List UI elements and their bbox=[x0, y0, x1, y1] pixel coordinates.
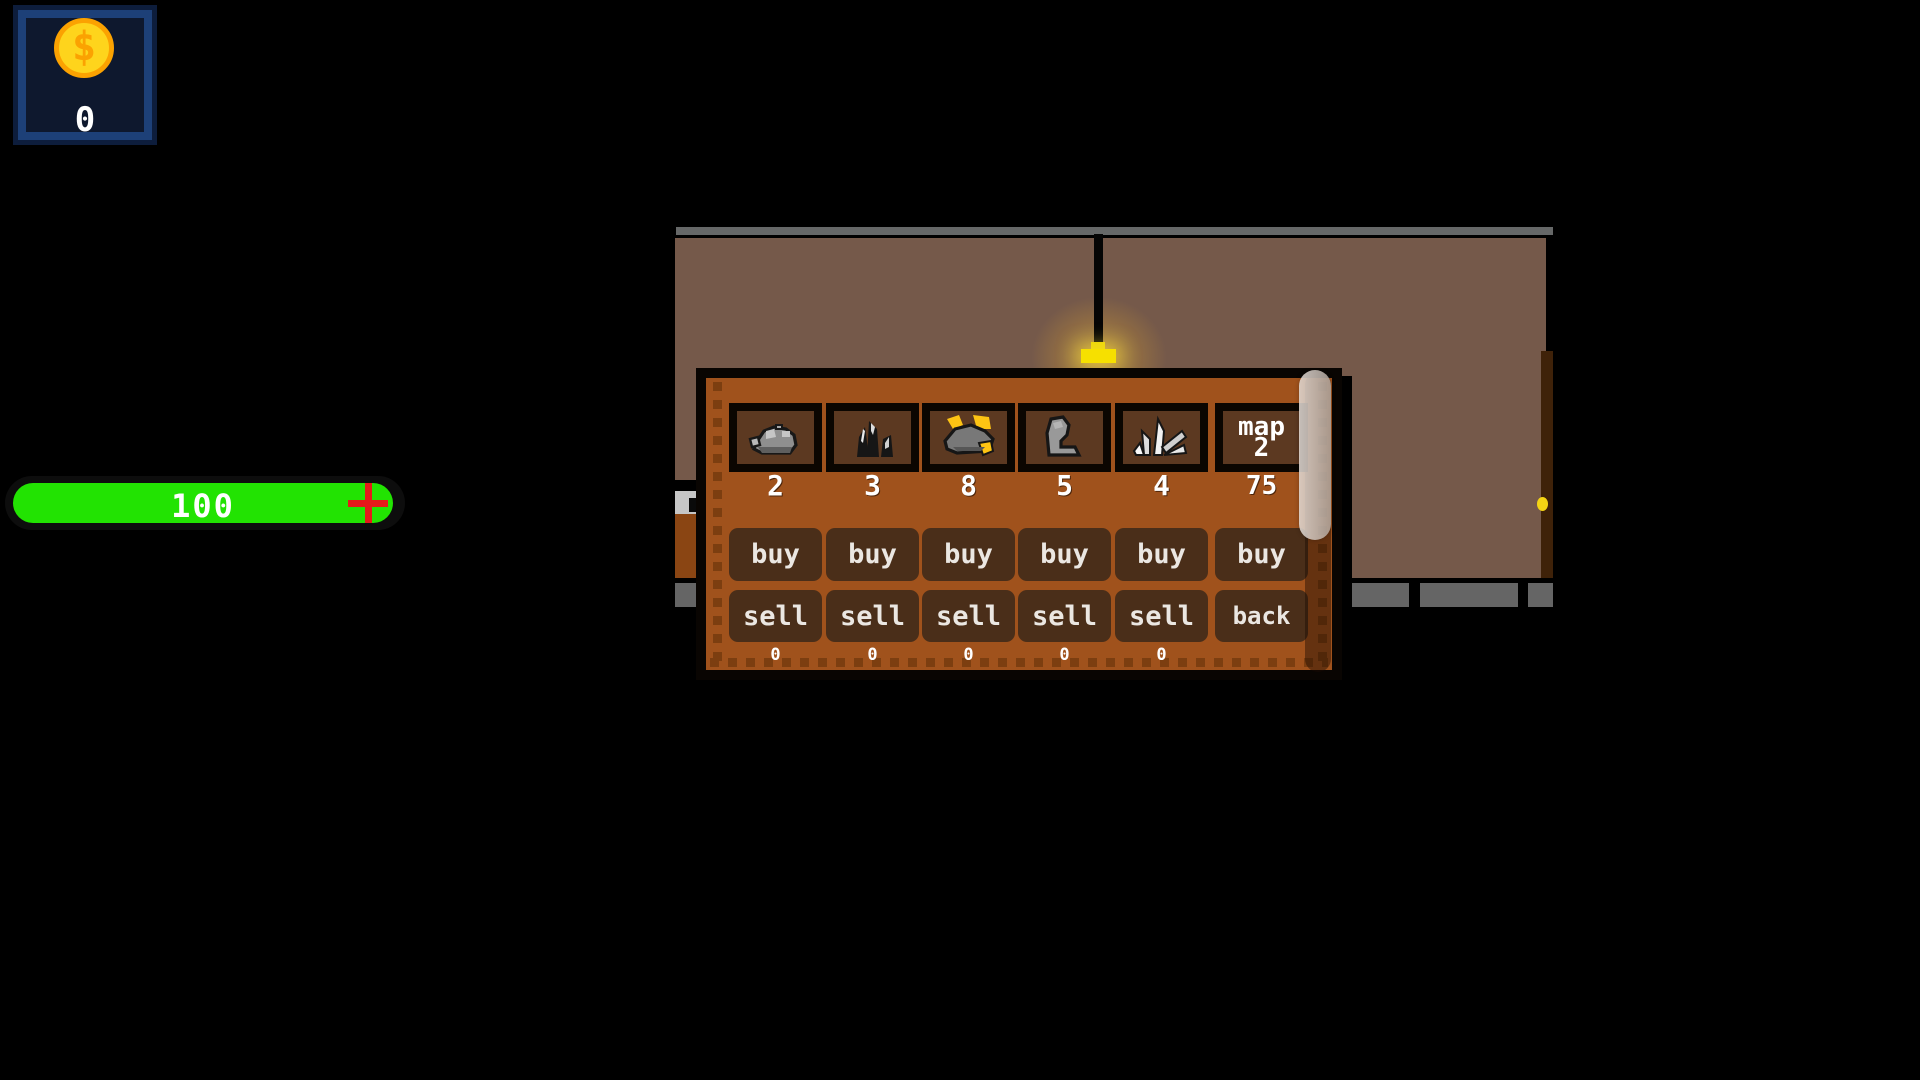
item-price: 2 bbox=[729, 472, 822, 500]
health-value: 100 bbox=[13, 487, 393, 525]
item-price: 3 bbox=[826, 472, 919, 500]
item-slot bbox=[922, 403, 1015, 472]
game-stage: $ 0 100 bbox=[0, 0, 1920, 1080]
shop-column-gold: 8 buy sell 0 bbox=[922, 368, 1015, 680]
shop-column-stone: 2 buy sell 0 bbox=[729, 368, 822, 680]
sell-button[interactable]: sell bbox=[1018, 590, 1111, 642]
item-price: 5 bbox=[1018, 472, 1111, 500]
buy-button[interactable]: buy bbox=[1215, 528, 1308, 581]
panel-stitch-left bbox=[713, 382, 722, 666]
item-slot bbox=[729, 403, 822, 472]
buy-button[interactable]: buy bbox=[826, 528, 919, 581]
sell-button[interactable]: sell bbox=[729, 590, 822, 642]
item-count: 0 bbox=[922, 645, 1015, 665]
lamp-cord bbox=[1094, 234, 1103, 346]
floor-tile bbox=[1337, 583, 1409, 607]
dollar-icon: $ bbox=[72, 27, 96, 67]
counter-body bbox=[675, 514, 698, 578]
item-price: 4 bbox=[1115, 472, 1208, 500]
doorknob-icon bbox=[1537, 497, 1548, 511]
item-count: 0 bbox=[1115, 645, 1208, 665]
item-price: 75 bbox=[1215, 472, 1308, 500]
lamp-bulb-icon bbox=[1081, 349, 1116, 363]
shop-column-crystal: 4 buy sell 0 bbox=[1115, 368, 1208, 680]
crystal-icon bbox=[1130, 413, 1194, 463]
buy-button[interactable]: buy bbox=[1115, 528, 1208, 581]
sell-button[interactable]: sell bbox=[1115, 590, 1208, 642]
item-slot bbox=[826, 403, 919, 472]
item-slot bbox=[1115, 403, 1208, 472]
sell-button[interactable]: sell bbox=[826, 590, 919, 642]
gold-ore-icon bbox=[937, 413, 1001, 463]
item-slot bbox=[1018, 403, 1111, 472]
health-bar: 100 bbox=[13, 483, 393, 523]
floor-tile bbox=[1528, 583, 1553, 607]
shop-column-coal: 3 buy sell 0 bbox=[826, 368, 919, 680]
coin-icon: $ bbox=[54, 18, 114, 78]
coal-icon bbox=[841, 413, 905, 463]
item-slot-map: map 2 bbox=[1215, 403, 1308, 472]
money-counter: $ 0 bbox=[13, 5, 157, 145]
floor-tile bbox=[675, 583, 698, 607]
floor-tile bbox=[1420, 583, 1518, 607]
door bbox=[1541, 351, 1553, 578]
shop-column-map: map 2 75 buy back bbox=[1215, 368, 1308, 680]
map-label: map 2 bbox=[1238, 417, 1285, 459]
item-price: 8 bbox=[922, 472, 1015, 500]
item-count: 0 bbox=[1018, 645, 1111, 665]
sell-button[interactable]: sell bbox=[922, 590, 1015, 642]
item-count: 0 bbox=[826, 645, 919, 665]
stone-ore-icon bbox=[744, 413, 808, 463]
health-plus-icon bbox=[348, 483, 388, 523]
ceiling-beam bbox=[676, 227, 1553, 235]
buy-button[interactable]: buy bbox=[1018, 528, 1111, 581]
item-count: 0 bbox=[729, 645, 822, 665]
counter-shadow bbox=[675, 480, 698, 491]
leather-icon bbox=[1033, 413, 1097, 463]
money-value: 0 bbox=[13, 103, 157, 137]
shop-panel: 2 buy sell 0 3 buy sell 0 bbox=[696, 368, 1342, 680]
buy-button[interactable]: buy bbox=[922, 528, 1015, 581]
buy-button[interactable]: buy bbox=[729, 528, 822, 581]
back-button[interactable]: back bbox=[1215, 590, 1308, 642]
scrollbar-thumb[interactable] bbox=[1299, 370, 1331, 540]
shop-column-leather: 5 buy sell 0 bbox=[1018, 368, 1111, 680]
